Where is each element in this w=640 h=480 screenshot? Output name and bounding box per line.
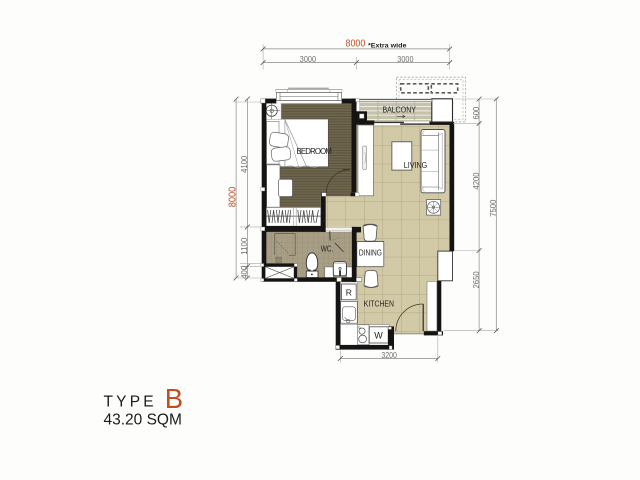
- svg-text:TYPE: TYPE: [104, 394, 157, 411]
- svg-text:8000: 8000: [346, 37, 366, 49]
- svg-text:R: R: [346, 287, 352, 297]
- svg-text:3000: 3000: [397, 55, 414, 64]
- svg-text:B: B: [165, 383, 183, 414]
- svg-text:7500: 7500: [489, 199, 498, 217]
- svg-text:4200: 4200: [472, 172, 481, 190]
- svg-text:DINING: DINING: [359, 248, 382, 257]
- svg-text:43.20 SQM: 43.20 SQM: [104, 412, 182, 429]
- svg-text:3000: 3000: [300, 55, 317, 64]
- svg-text:BEDROOM: BEDROOM: [297, 147, 332, 156]
- svg-text:WC.: WC.: [321, 245, 334, 254]
- svg-text:400: 400: [240, 265, 249, 278]
- svg-text:3200: 3200: [381, 351, 397, 360]
- svg-text:*Extra wide: *Extra wide: [368, 42, 407, 49]
- svg-text:8000: 8000: [227, 187, 239, 208]
- svg-text:BALCONY: BALCONY: [382, 106, 416, 115]
- svg-text:1100: 1100: [240, 237, 249, 255]
- svg-text:W: W: [374, 330, 383, 340]
- svg-text:600: 600: [472, 106, 481, 119]
- svg-text:4100: 4100: [240, 155, 249, 173]
- svg-text:KITCHEN: KITCHEN: [364, 299, 394, 308]
- svg-text:2650: 2650: [472, 271, 481, 289]
- svg-text:LIVING: LIVING: [404, 161, 428, 170]
